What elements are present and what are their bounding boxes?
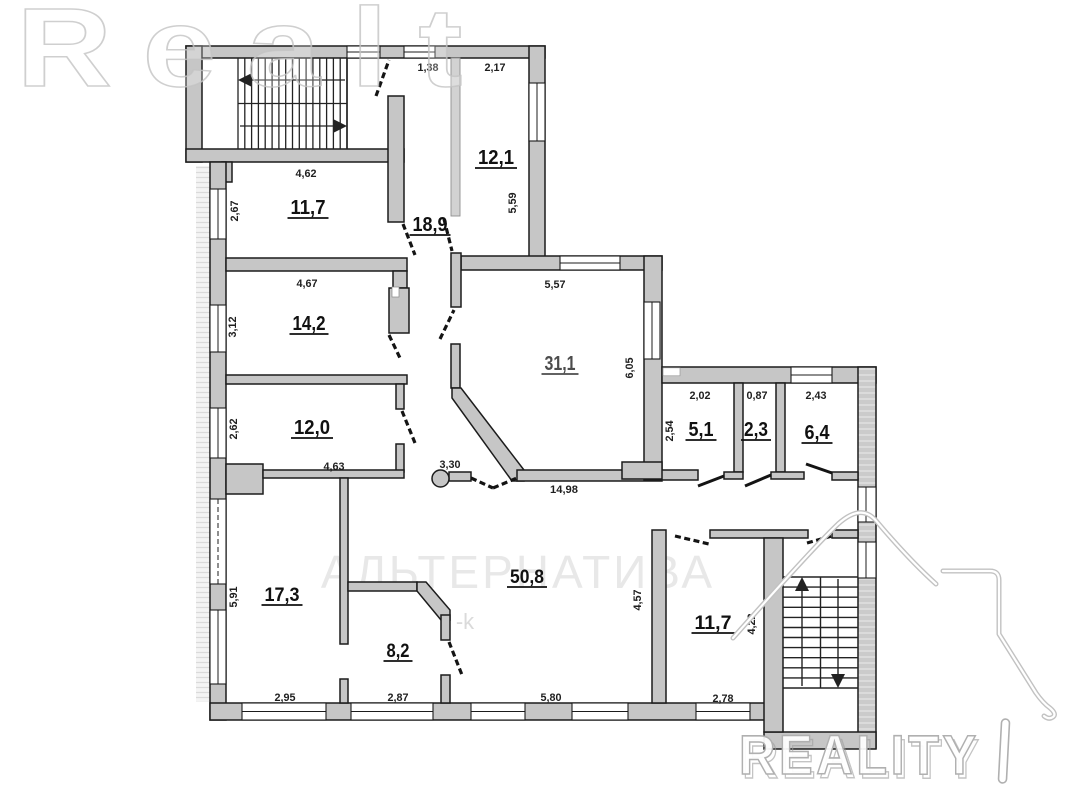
svg-text:4,62: 4,62	[296, 168, 317, 180]
svg-text:2,62: 2,62	[228, 419, 240, 440]
svg-text:2,95: 2,95	[275, 692, 296, 704]
svg-text:Realt: Realt	[17, 0, 494, 110]
svg-text:12,0: 12,0	[294, 417, 330, 439]
svg-text:4,63: 4,63	[324, 461, 345, 473]
svg-text:4,57: 4,57	[632, 590, 644, 611]
svg-text:-k: -k	[456, 609, 475, 634]
svg-text:50,8: 50,8	[510, 567, 544, 588]
svg-text:12,1: 12,1	[478, 147, 514, 169]
svg-text:5,59: 5,59	[507, 193, 519, 214]
svg-text:2,3: 2,3	[744, 419, 768, 441]
svg-text:5,57: 5,57	[545, 279, 566, 291]
svg-text:31,1: 31,1	[545, 353, 576, 375]
svg-text:6,4: 6,4	[805, 422, 831, 444]
svg-text:REALITY: REALITY	[739, 725, 980, 787]
svg-text:0,87: 0,87	[747, 390, 768, 402]
svg-text:6,05: 6,05	[624, 358, 636, 379]
svg-text:18,9: 18,9	[413, 214, 448, 236]
svg-text:4,67: 4,67	[297, 278, 318, 290]
svg-text:5,80: 5,80	[541, 692, 562, 704]
svg-text:14,98: 14,98	[550, 484, 578, 496]
svg-text:5,91: 5,91	[228, 587, 240, 608]
svg-text:2,87: 2,87	[388, 692, 409, 704]
svg-text:11,7: 11,7	[291, 197, 326, 219]
svg-text:2,78: 2,78	[713, 693, 734, 705]
svg-text:3,12: 3,12	[227, 317, 239, 338]
svg-text:3,30: 3,30	[440, 459, 461, 471]
svg-text:11,7: 11,7	[695, 613, 732, 634]
svg-text:2,54: 2,54	[664, 420, 676, 442]
svg-text:8,2: 8,2	[387, 641, 410, 662]
svg-text:17,3: 17,3	[265, 585, 300, 606]
svg-text:2,02: 2,02	[690, 390, 711, 402]
svg-text:2,67: 2,67	[229, 201, 241, 222]
svg-text:14,2: 14,2	[293, 313, 326, 335]
svg-text:5,1: 5,1	[689, 419, 714, 441]
svg-text:2,43: 2,43	[806, 390, 827, 402]
